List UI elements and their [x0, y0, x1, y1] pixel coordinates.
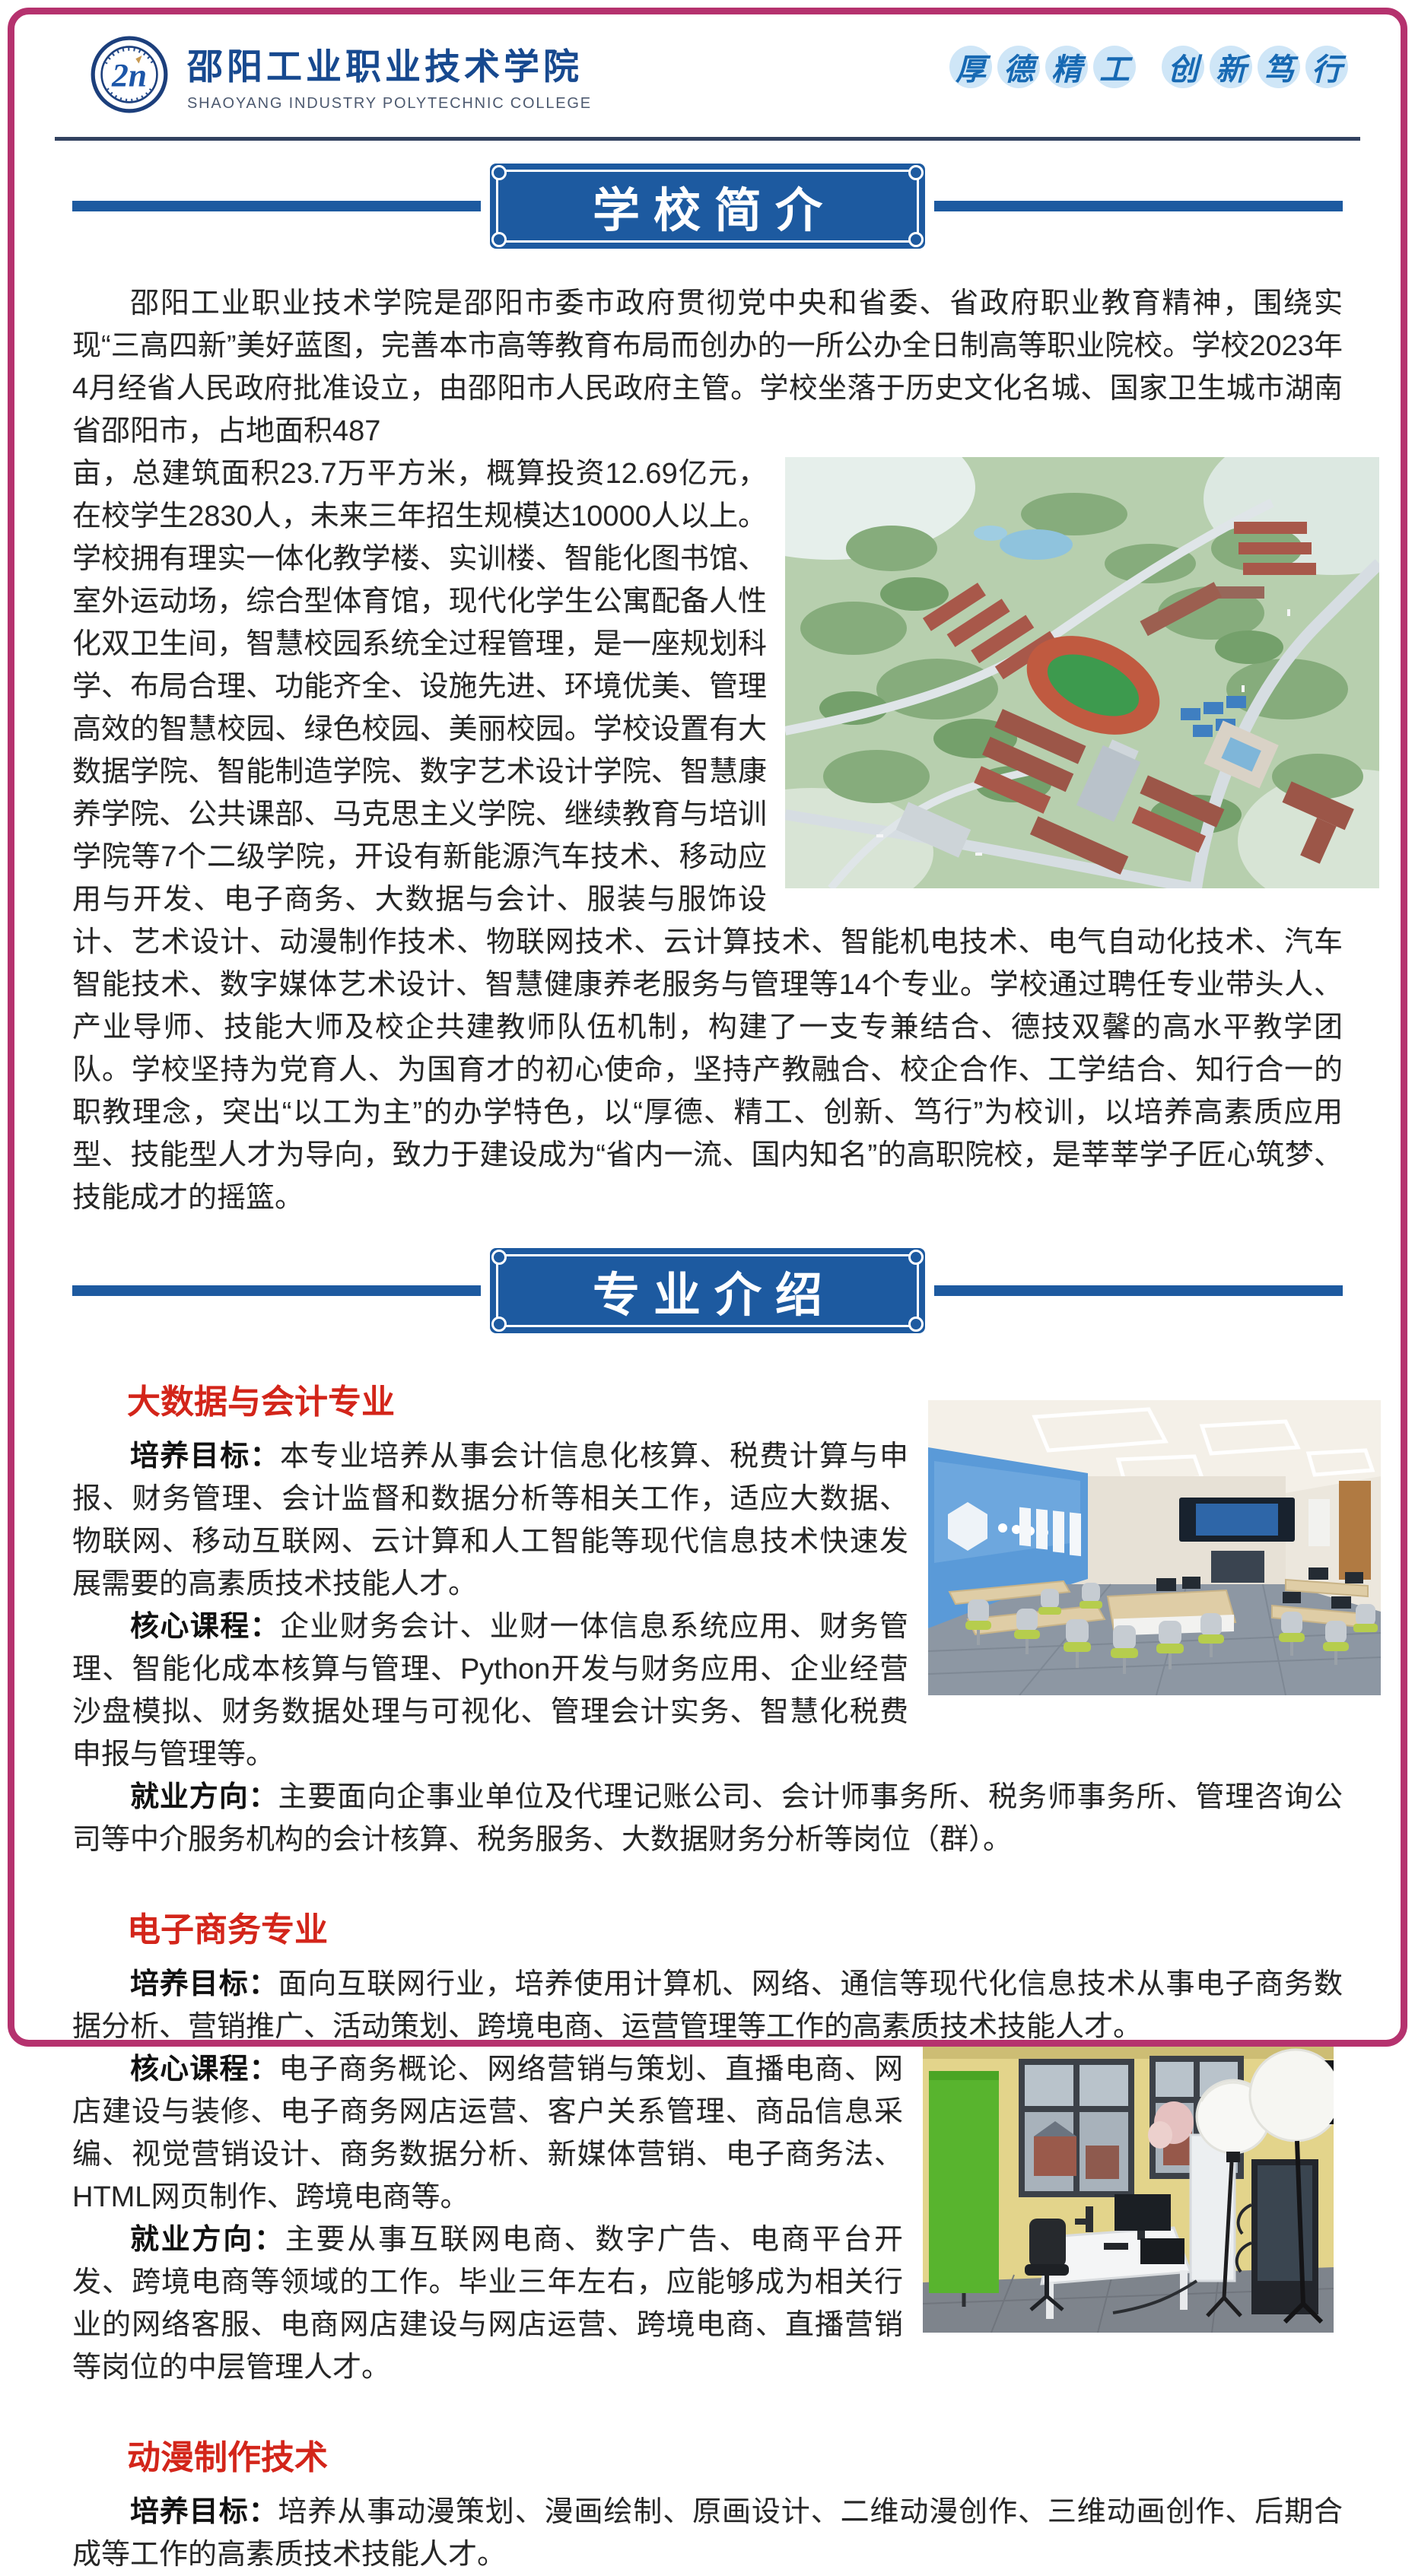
school-intro-banner-box: 学校简介: [490, 164, 925, 249]
motto-character: 笃: [1258, 46, 1300, 88]
motto-character: 德: [997, 46, 1040, 88]
college-name-cn: 邵阳工业职业技术学院: [187, 37, 592, 90]
header-divider-line: [55, 137, 1360, 141]
motto-phrase-houde-jinggong: 厚德精工: [949, 46, 1136, 88]
paragraph-label: 核心课程：: [130, 2053, 279, 2085]
motto-character: 创: [1162, 46, 1204, 88]
major-paragraph: 核心课程：电子商务概论、网络营销与策划、直播电商、网店建设与装修、电子商务网店运…: [72, 2048, 1343, 2219]
motto-character: 行: [1305, 46, 1348, 88]
banner-line-left: [72, 201, 481, 211]
motto-character: 工: [1093, 46, 1136, 88]
banner-line-left: [72, 1285, 481, 1296]
school-intro-banner-title: 学校简介: [579, 172, 836, 240]
intro-paragraph-part1: 邵阳工业职业技术学院是邵阳市委市政府贯彻党中央和省委、省政府职业教育精神，围绕实…: [72, 282, 1343, 453]
banner-line-right: [934, 201, 1343, 211]
major-paragraph: 培养目标：培养从事动漫策划、漫画绘制、原画设计、二维动漫创作、三维动画创作、后期…: [72, 2491, 1343, 2576]
major-title-animation: 动漫制作技术: [127, 2430, 1343, 2479]
campus-aerial-rendering: [785, 457, 1379, 888]
major-title-ecommerce: 电子商务专业: [127, 1902, 1343, 1951]
motto-character: 厚: [949, 46, 992, 88]
school-intro-content: 邵阳工业职业技术学院是邵阳市委市政府贯彻党中央和省委、省政府职业教育精神，围绕实…: [0, 282, 1415, 1219]
banner-line-right: [934, 1285, 1343, 1296]
ecommerce-livestream-studio: [923, 2045, 1334, 2333]
paragraph-label: 培养目标：: [130, 2496, 278, 2528]
svg-text:2n: 2n: [111, 58, 147, 94]
major-section-animation: 动漫制作技术 培养目标：培养从事动漫策划、漫画绘制、原画设计、二维动漫创作、三维…: [72, 2430, 1343, 2576]
majors-banner: 专业介绍: [0, 1248, 1415, 1333]
major-section-big-data-accounting: 大数据与会计专业 培养目标：本专业培养从事会计信息化核算、税费计算与申报、财务管…: [72, 1374, 1343, 1861]
major-section-ecommerce: 电子商务专业 培养目标：面向互联网行业，培养使用计算机、网络、通信等现代化信息技…: [72, 1902, 1343, 2389]
paragraph-label: 就业方向：: [130, 2224, 285, 2256]
intro-paragraph-part2: 亩，总建筑面积23.7万平方米，概算投资12.69亿元，在校学生2830人，未来…: [72, 453, 1343, 1219]
major-paragraph: 培养目标：面向互联网行业，培养使用计算机、网络、通信等现代化信息技术从事电子商务…: [72, 1963, 1343, 2048]
header: 2n 邵阳工业职业技术学院 SHAOYANG INDUSTRY POLYTECH…: [0, 0, 1415, 126]
major-paragraph: 就业方向：主要面向企事业单位及代理记账公司、会计师事务所、税务师事务所、管理咨询…: [72, 1776, 1343, 1861]
paragraph-label: 核心课程：: [130, 1611, 280, 1643]
ecommerce-studio-photo: [923, 2045, 1334, 2333]
motto-character: 新: [1210, 46, 1252, 88]
accounting-classroom-photo: [928, 1400, 1381, 1695]
college-brand: 2n 邵阳工业职业技术学院 SHAOYANG INDUSTRY POLYTECH…: [90, 35, 592, 114]
motto-phrase-chuangxin-duxing: 创新笃行: [1162, 46, 1348, 88]
school-motto: 厚德精工 创新笃行: [949, 46, 1348, 88]
school-intro-banner: 学校简介: [0, 164, 1415, 249]
motto-character: 精: [1045, 46, 1088, 88]
paragraph-label: 培养目标：: [130, 1968, 278, 2000]
majors-content: 大数据与会计专业 培养目标：本专业培养从事会计信息化核算、税费计算与申报、财务管…: [0, 1374, 1415, 2576]
college-logo-icon: 2n: [90, 35, 169, 114]
campus-aerial-photo: [785, 457, 1379, 888]
paragraph-label: 就业方向：: [130, 1781, 278, 1813]
majors-banner-box: 专业介绍: [490, 1248, 925, 1333]
majors-banner-title: 专业介绍: [579, 1256, 836, 1325]
college-names: 邵阳工业职业技术学院 SHAOYANG INDUSTRY POLYTECHNIC…: [187, 37, 592, 113]
college-name-en: SHAOYANG INDUSTRY POLYTECHNIC COLLEGE: [187, 95, 592, 113]
smart-accounting-classroom-rendering: [928, 1400, 1381, 1695]
paragraph-label: 培养目标：: [130, 1440, 280, 1472]
